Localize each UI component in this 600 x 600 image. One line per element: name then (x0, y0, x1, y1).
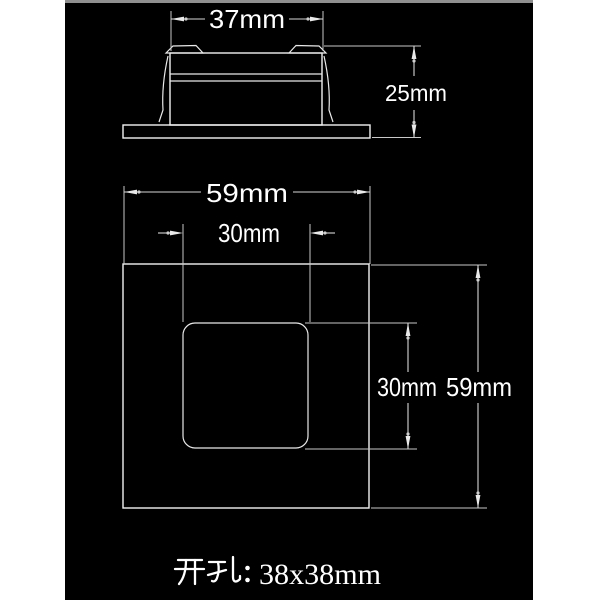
side-view-height-dimension-label: 25mm (385, 80, 447, 106)
right-spring (324, 56, 333, 122)
front-view-outer-width-dimension-label: 59mm (206, 178, 288, 208)
technical-drawing-svg: 37mm 25mm (65, 0, 533, 600)
front-view-inner-height-dimension-label: 30mm (377, 372, 437, 402)
faceplate-inner-window (183, 323, 308, 448)
dimension-drawing-page: 37mm 25mm (0, 0, 600, 600)
caption-colon-dot-top (245, 566, 250, 571)
fixture-body (170, 53, 322, 125)
caption-prefix-kaikong-glyphs (175, 557, 240, 584)
caption-cutout-size-label: 38x38mm (259, 558, 381, 591)
drawing-canvas: 37mm 25mm (65, 0, 533, 600)
right-mounting-clip (289, 46, 326, 54)
side-view-fixture (123, 46, 370, 139)
cutout-caption: 38x38mm (175, 557, 381, 591)
front-view-outer-height-dimension-label: 59mm (446, 372, 512, 402)
left-spring (159, 56, 168, 122)
left-mounting-clip (166, 46, 203, 54)
fixture-flange (123, 125, 370, 138)
front-view-inner-width-dimension-label: 30mm (218, 218, 280, 248)
front-view-dimensions: 59mm 30mm 30mm (124, 178, 512, 508)
front-view-faceplate (123, 264, 369, 508)
faceplate-outer-square (123, 264, 369, 508)
side-view-dimensions: 37mm 25mm (171, 4, 447, 138)
side-view-width-dimension-label: 37mm (209, 4, 285, 34)
caption-colon-dot-bottom (245, 578, 250, 583)
